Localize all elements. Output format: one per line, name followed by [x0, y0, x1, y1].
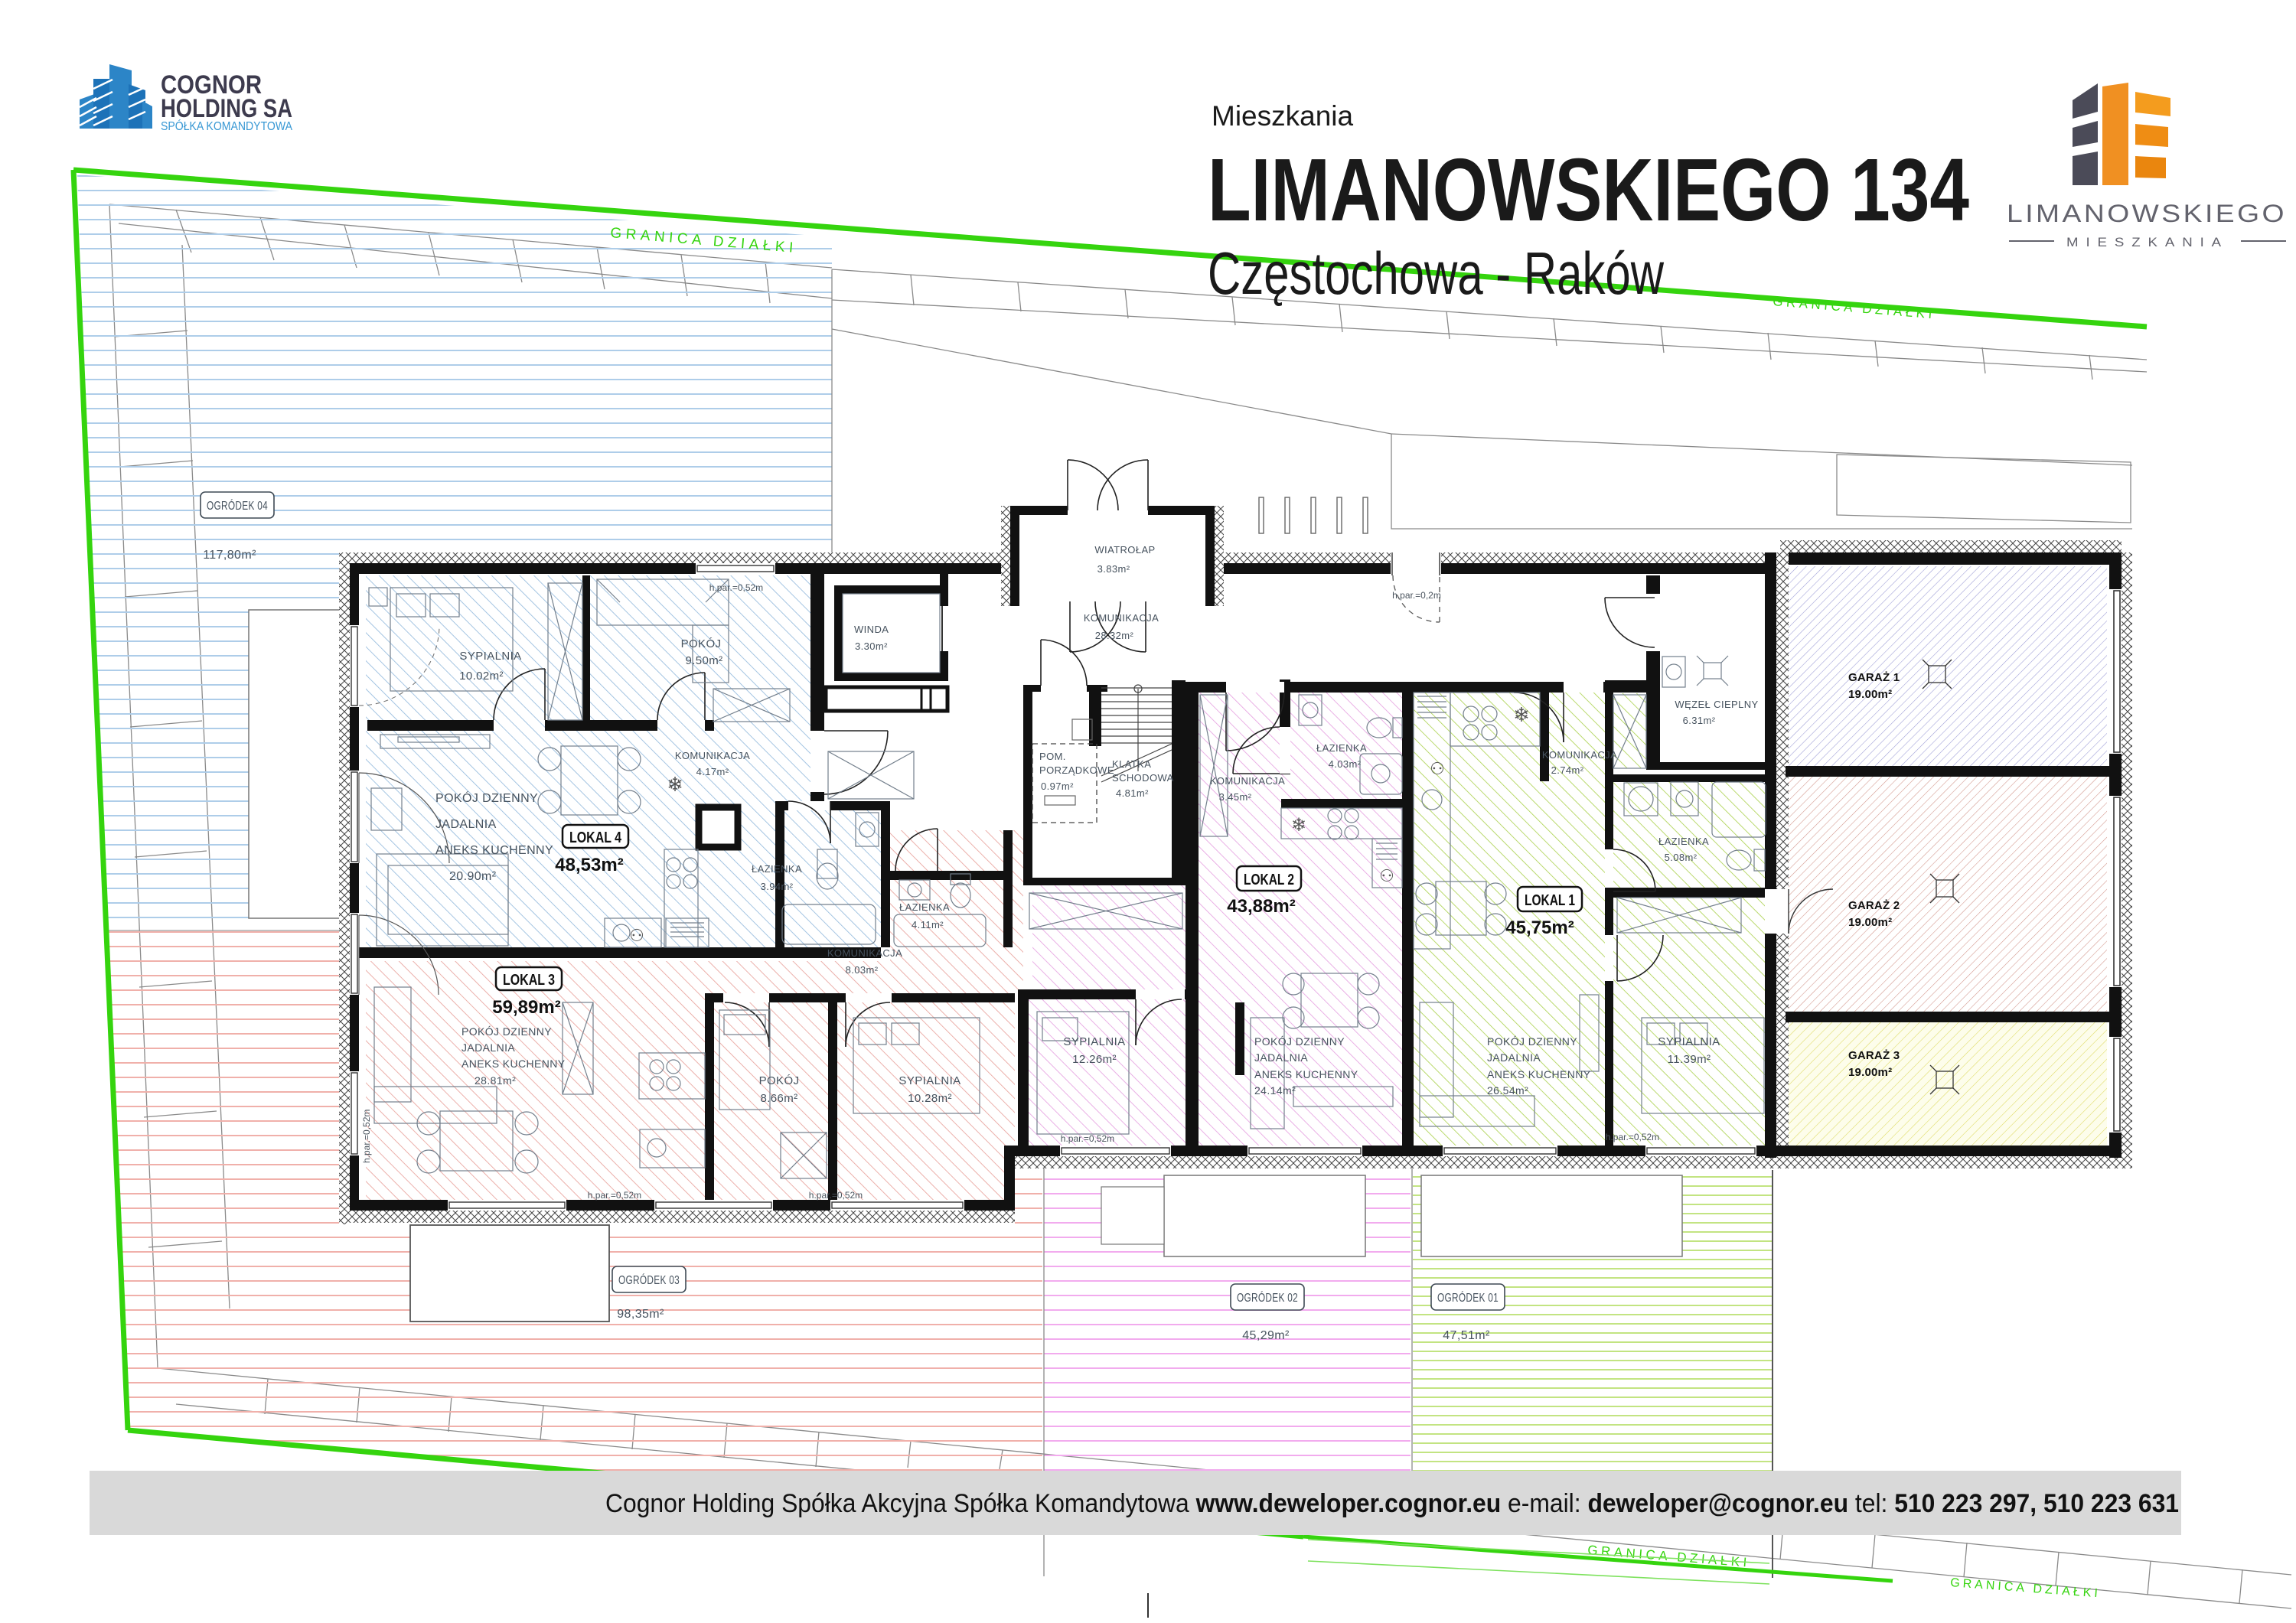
svg-text:ANEKS KUCHENNY: ANEKS KUCHENNY [1487, 1068, 1591, 1080]
svg-text:ANEKS KUCHENNY: ANEKS KUCHENNY [1254, 1068, 1358, 1080]
svg-text:LOKAL 2: LOKAL 2 [1244, 872, 1294, 888]
svg-text:ANEKS KUCHENNY: ANEKS KUCHENNY [435, 844, 553, 857]
svg-text:MIESZKANIA: MIESZKANIA [2066, 235, 2229, 249]
svg-text:KLATKA: KLATKA [1112, 758, 1151, 770]
svg-text:POKÓJ DZIENNY: POKÓJ DZIENNY [1487, 1035, 1577, 1048]
svg-text:Mieszkania: Mieszkania [1212, 100, 1353, 132]
svg-text:4.81m²: 4.81m² [1116, 787, 1149, 799]
svg-text:PORZĄDKOWE: PORZĄDKOWE [1039, 764, 1114, 776]
svg-text:8.66m²: 8.66m² [760, 1092, 797, 1105]
svg-text:SCHODOWA: SCHODOWA [1112, 772, 1174, 784]
svg-text:SYPIALNIA: SYPIALNIA [1063, 1035, 1125, 1048]
svg-text:19.00m²: 19.00m² [1848, 688, 1892, 701]
svg-text:45,75m²: 45,75m² [1505, 917, 1574, 938]
svg-text:59,89m²: 59,89m² [492, 997, 560, 1018]
svg-text:JADALNIA: JADALNIA [1487, 1051, 1541, 1064]
svg-text:19.00m²: 19.00m² [1848, 916, 1892, 929]
svg-text:POKÓJ DZIENNY: POKÓJ DZIENNY [435, 790, 538, 805]
svg-text:POM.: POM. [1039, 751, 1066, 762]
svg-text:4.17m²: 4.17m² [696, 766, 729, 777]
svg-text:9.50m²: 9.50m² [685, 654, 722, 667]
svg-text:SYPIALNIA: SYPIALNIA [1658, 1035, 1720, 1048]
svg-text:OGRÓDEK 01: OGRÓDEK 01 [1437, 1290, 1499, 1305]
svg-text:POKÓJ: POKÓJ [759, 1074, 800, 1087]
svg-text:LIMANOWSKIEGO: LIMANOWSKIEGO [2007, 200, 2287, 227]
svg-text:h.par.=0,52m: h.par.=0,52m [588, 1190, 641, 1201]
svg-text:WIATROŁAP: WIATROŁAP [1094, 544, 1155, 556]
svg-text:KOMUNIKACJA: KOMUNIKACJA [675, 750, 750, 761]
svg-text:LOKAL 4: LOKAL 4 [569, 829, 622, 846]
svg-text:24.14m²: 24.14m² [1254, 1084, 1296, 1097]
svg-text:LOKAL 1: LOKAL 1 [1525, 892, 1575, 909]
svg-text:WINDA: WINDA [854, 624, 889, 635]
svg-text:48,53m²: 48,53m² [555, 855, 623, 875]
svg-text:❄: ❄ [1513, 703, 1530, 726]
svg-text:4.11m²: 4.11m² [912, 919, 944, 930]
svg-text:10.28m²: 10.28m² [908, 1092, 952, 1105]
svg-text:SYPIALNIA: SYPIALNIA [459, 650, 521, 663]
svg-text:h.par.=0,52m: h.par.=0,52m [809, 1190, 863, 1201]
svg-text:117,80m²: 117,80m² [203, 549, 256, 562]
svg-text:SPÓŁKA KOMANDYTOWA: SPÓŁKA KOMANDYTOWA [161, 119, 292, 133]
svg-text:11.39m²: 11.39m² [1668, 1053, 1711, 1066]
svg-text:3.83m²: 3.83m² [1097, 563, 1130, 575]
svg-text:3.30m²: 3.30m² [855, 640, 888, 652]
svg-text:LOKAL 3: LOKAL 3 [503, 972, 555, 989]
svg-text:GARAŻ 3: GARAŻ 3 [1848, 1049, 1900, 1062]
svg-text:28.32m²: 28.32m² [1095, 630, 1134, 641]
svg-text:⚇: ⚇ [629, 926, 644, 945]
svg-text:LIMANOWSKIEGO 134: LIMANOWSKIEGO 134 [1208, 140, 1969, 240]
svg-text:Cognor Holding Spółka Akcyjna: Cognor Holding Spółka Akcyjna Spółka Kom… [605, 1489, 2179, 1518]
svg-text:43,88m²: 43,88m² [1227, 896, 1295, 917]
svg-text:POKÓJ DZIENNY: POKÓJ DZIENNY [461, 1025, 552, 1038]
svg-text:h.par.=0,52m: h.par.=0,52m [1606, 1132, 1659, 1142]
svg-text:OGRÓDEK 03: OGRÓDEK 03 [618, 1273, 680, 1287]
svg-text:8.03m²: 8.03m² [846, 964, 879, 976]
svg-text:12.26m²: 12.26m² [1072, 1053, 1117, 1066]
svg-text:JADALNIA: JADALNIA [1254, 1051, 1308, 1064]
svg-text:⚇: ⚇ [1379, 866, 1394, 885]
svg-text:19.00m²: 19.00m² [1848, 1066, 1892, 1079]
svg-text:3.94m²: 3.94m² [761, 881, 794, 892]
svg-text:28.81m²: 28.81m² [475, 1074, 516, 1087]
svg-text:SYPIALNIA: SYPIALNIA [899, 1074, 960, 1087]
svg-text:20.90m²: 20.90m² [449, 870, 497, 883]
svg-text:ŁAZIENKA: ŁAZIENKA [752, 863, 802, 875]
svg-text:6.31m²: 6.31m² [1683, 715, 1716, 726]
svg-text:Częstochowa - Raków: Częstochowa - Raków [1208, 240, 1665, 307]
svg-text:GARAŻ 2: GARAŻ 2 [1848, 899, 1900, 912]
svg-text:KOMUNIKACJA: KOMUNIKACJA [1542, 749, 1617, 761]
svg-text:2.74m²: 2.74m² [1551, 764, 1584, 776]
svg-text:0.97m²: 0.97m² [1041, 781, 1074, 792]
svg-text:ANEKS KUCHENNY: ANEKS KUCHENNY [461, 1058, 566, 1070]
svg-text:❄: ❄ [667, 773, 683, 796]
svg-text:ŁAZIENKA: ŁAZIENKA [899, 901, 950, 913]
svg-text:5.08m²: 5.08m² [1665, 852, 1698, 863]
svg-text:h.par.=0,2m: h.par.=0,2m [1392, 590, 1441, 601]
svg-text:⚇: ⚇ [1430, 759, 1445, 778]
svg-text:h.par.=0,52m: h.par.=0,52m [1061, 1133, 1114, 1144]
svg-text:JADALNIA: JADALNIA [461, 1041, 515, 1054]
svg-text:POKÓJ DZIENNY: POKÓJ DZIENNY [1254, 1035, 1345, 1048]
svg-text:❄: ❄ [1291, 815, 1306, 836]
svg-text:47,51m²: 47,51m² [1443, 1329, 1490, 1342]
svg-text:45,29m²: 45,29m² [1242, 1329, 1290, 1342]
svg-text:KOMUNIKACJA: KOMUNIKACJA [1084, 612, 1159, 624]
svg-text:HOLDING SA: HOLDING SA [161, 94, 292, 123]
svg-text:h.par.=0,52m: h.par.=0,52m [709, 582, 763, 593]
svg-text:10.02m²: 10.02m² [459, 670, 504, 683]
svg-text:4.03m²: 4.03m² [1329, 758, 1362, 770]
svg-text:3.45m²: 3.45m² [1219, 791, 1252, 803]
svg-text:POKÓJ: POKÓJ [681, 637, 722, 650]
svg-text:h.par.=0,52m: h.par.=0,52m [361, 1110, 372, 1163]
svg-text:OGRÓDEK 02: OGRÓDEK 02 [1237, 1290, 1298, 1305]
svg-text:GARAŻ 1: GARAŻ 1 [1848, 671, 1900, 684]
svg-text:ŁAZIENKA: ŁAZIENKA [1316, 742, 1367, 754]
svg-text:KOMUNIKACJA: KOMUNIKACJA [1210, 775, 1285, 787]
svg-text:WĘZEŁ CIEPLNY: WĘZEŁ CIEPLNY [1675, 699, 1758, 710]
svg-text:ŁAZIENKA: ŁAZIENKA [1658, 836, 1709, 847]
svg-text:OGRÓDEK 04: OGRÓDEK 04 [207, 498, 268, 513]
svg-text:26.54m²: 26.54m² [1487, 1084, 1528, 1097]
svg-text:98,35m²: 98,35m² [617, 1308, 664, 1321]
svg-text:KOMUNIKACJA: KOMUNIKACJA [827, 947, 902, 959]
svg-text:JADALNIA: JADALNIA [435, 818, 497, 831]
